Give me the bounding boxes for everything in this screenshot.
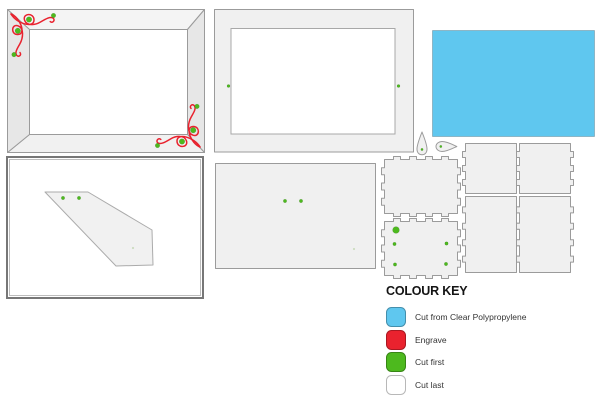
frame-window-hole [231,29,395,135]
legend-label: Cut first [415,357,444,367]
legend-label: Cut from Clear Polypropylene [415,312,527,322]
legend-row-engrave: Engrave [386,330,598,350]
legend-row-cut-last: Cut last [386,375,598,395]
tabbed-panel-tall [462,196,520,273]
legend-label: Engrave [415,335,447,345]
box-joint-square-piece [381,156,461,217]
flat-frame-piece [214,9,414,153]
polypropylene-sheet [432,30,595,137]
cut-last-swatch [386,375,406,395]
frame-top-bar [8,10,205,30]
legend-label: Cut last [415,380,444,390]
box-joint-square-piece-marked [381,218,461,279]
tabbed-panel-short [462,143,520,194]
back-panel-piece [215,163,376,269]
beveled-frame-piece [7,9,205,153]
colour-key: COLOUR KEY Cut from Clear Polypropylene … [386,284,598,397]
laser-cutting-layout: COLOUR KEY Cut from Clear Polypropylene … [0,0,600,407]
stand-blade-piece [6,156,204,299]
legend-row-polypropylene: Cut from Clear Polypropylene [386,307,598,327]
teardrop-piece-vertical [416,131,429,157]
polypropylene-swatch [386,307,406,327]
colour-key-title: COLOUR KEY [386,284,598,298]
legend-row-cut-first: Cut first [386,352,598,372]
tabbed-panel-short [516,143,574,194]
teardrop-piece-horizontal [435,140,458,153]
tabbed-panel-tall [516,196,574,273]
cut-first-swatch [386,352,406,372]
engrave-swatch [386,330,406,350]
